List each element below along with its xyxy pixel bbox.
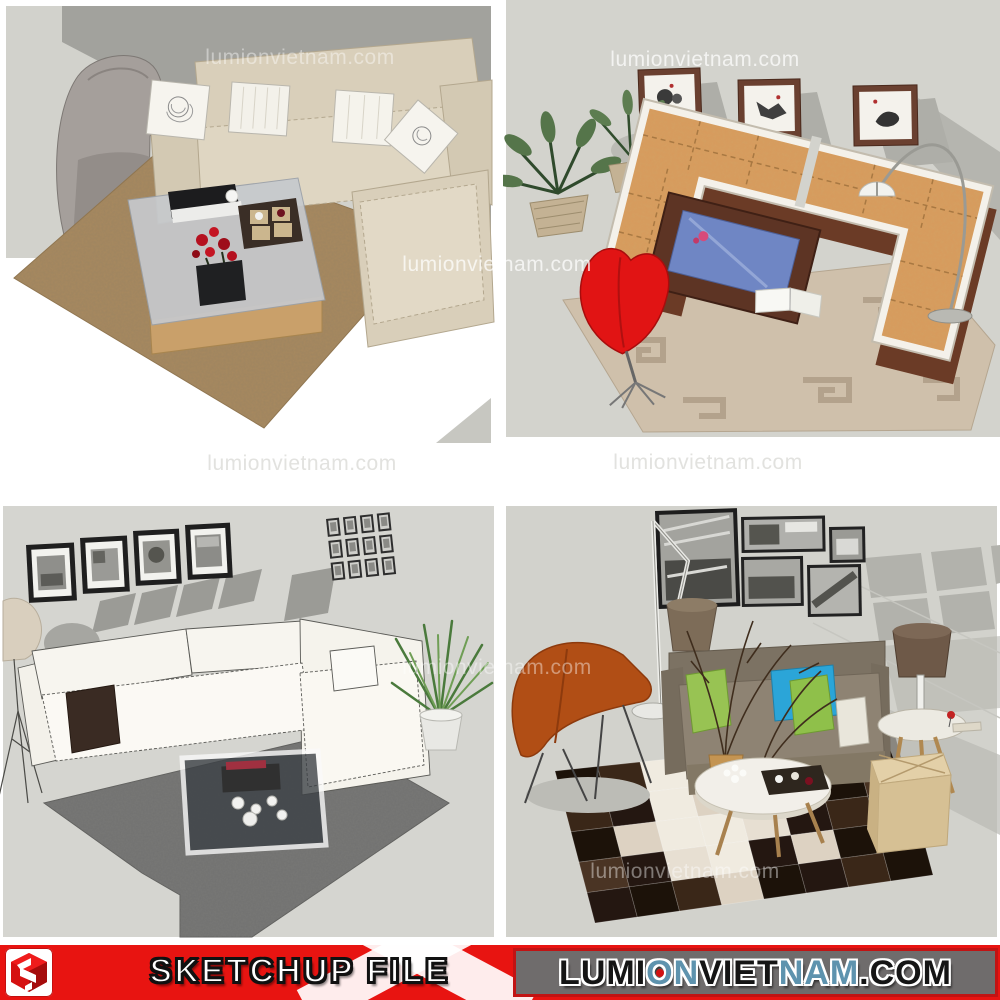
render-quadrant-beige-sectional [0, 0, 497, 443]
render-quadrant-rattan-u-sofa [503, 0, 1000, 443]
site-letter: N [674, 956, 700, 990]
sketchup-file-label: SKETCHUP FILE [110, 952, 490, 990]
sketchup-logo [5, 948, 53, 997]
sketchup-logo-icon [5, 948, 53, 997]
watermark-text: lumionvietnam.com [613, 451, 802, 475]
site-letter: NAM [779, 956, 859, 990]
coffee-table [128, 178, 325, 354]
site-wordmark: LUMION VIETNAM.COM [559, 956, 952, 990]
site-panel: LUMION VIETNAM.COM [513, 948, 998, 997]
site-letter: .COM [859, 956, 952, 990]
pouf-ottoman [867, 753, 951, 853]
render-quadrant-white-sectional [0, 503, 497, 940]
bottom-banner: SKETCHUP FILE LUMION VIETNAM.COM [0, 945, 1000, 1000]
render-quadrant-taupe-sofa [503, 503, 1000, 940]
site-letter: LUMI [559, 956, 646, 990]
site-letter: O [646, 956, 673, 990]
site-letter: VIET [699, 956, 779, 990]
glass-coffee-table [182, 751, 326, 853]
watermark-text: lumionvietnam.com [207, 452, 396, 476]
